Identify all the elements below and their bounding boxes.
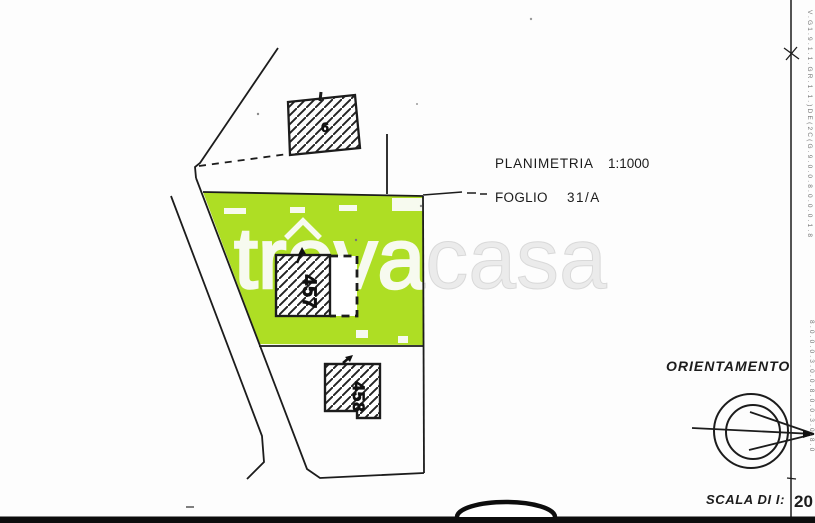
- svg-text:6: 6: [321, 119, 329, 135]
- svg-text:SCALA DI I:: SCALA DI I:: [706, 492, 785, 507]
- svg-text:8.0.0.0.3.0.0.8.0.0.3.0.8.0: 8.0.0.0.3.0.0.8.0.0.3.0.8.0: [808, 320, 815, 454]
- svg-text:V.G1.9.1.1.GR.1.1.)DE(2C(G.9.0: V.G1.9.1.1.GR.1.1.)DE(2C(G.9.0.0.8.0.0.0…: [806, 10, 813, 239]
- svg-text:31/A: 31/A: [567, 190, 601, 205]
- svg-text:ORIENTAMENTO: ORIENTAMENTO: [666, 358, 790, 374]
- svg-text:458: 458: [349, 381, 368, 412]
- svg-text:PLANIMETRIA: PLANIMETRIA: [495, 156, 594, 171]
- svg-text:457: 457: [298, 275, 319, 310]
- svg-text:FOGLIO: FOGLIO: [495, 190, 548, 205]
- svg-text:20: 20: [794, 492, 813, 511]
- svg-text:1:1000: 1:1000: [608, 156, 649, 171]
